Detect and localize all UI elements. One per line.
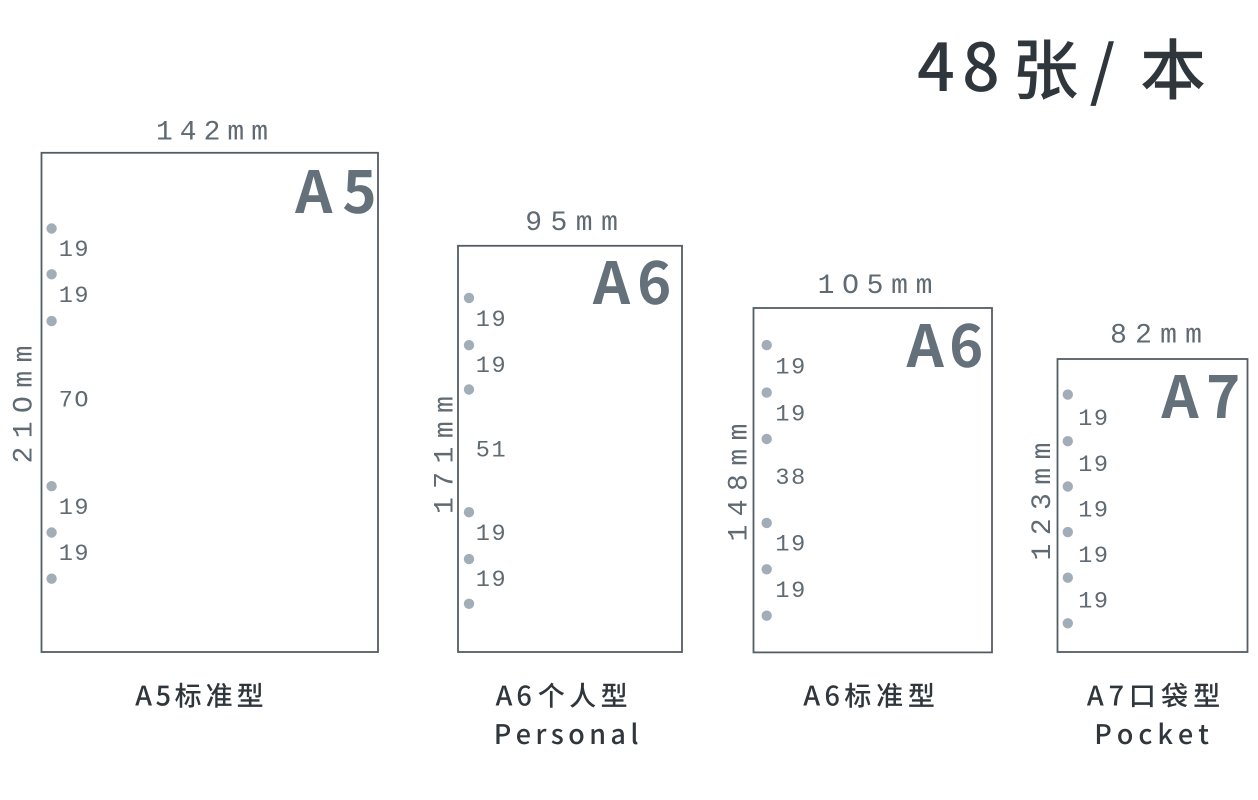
svg-text:19: 19 bbox=[59, 495, 90, 522]
svg-text:19: 19 bbox=[775, 354, 806, 381]
svg-text:82mm: 82mm bbox=[1110, 321, 1210, 352]
svg-text:19: 19 bbox=[1078, 497, 1109, 524]
svg-text:19: 19 bbox=[775, 578, 806, 605]
svg-text:19: 19 bbox=[1078, 406, 1109, 433]
svg-text:19: 19 bbox=[775, 532, 806, 559]
svg-text:21Omm: 21Omm bbox=[10, 337, 41, 464]
svg-text:19: 19 bbox=[775, 401, 806, 428]
svg-text:19: 19 bbox=[476, 353, 507, 380]
svg-text:19: 19 bbox=[476, 307, 507, 334]
svg-text:51: 51 bbox=[476, 438, 507, 465]
svg-text:95mm: 95mm bbox=[525, 208, 626, 239]
svg-text:38: 38 bbox=[775, 465, 806, 492]
svg-text:19: 19 bbox=[59, 237, 90, 264]
svg-text:19: 19 bbox=[476, 521, 507, 548]
svg-text:19: 19 bbox=[1078, 543, 1109, 570]
svg-text:19: 19 bbox=[59, 541, 90, 568]
svg-text:148mm: 148mm bbox=[725, 415, 756, 542]
svg-text:7O: 7O bbox=[59, 388, 90, 415]
svg-text:171mm: 171mm bbox=[431, 388, 462, 515]
svg-text:123mm: 123mm bbox=[1028, 434, 1059, 561]
svg-text:19: 19 bbox=[59, 283, 90, 310]
svg-text:19: 19 bbox=[1078, 589, 1109, 616]
svg-text:1O5mm: 1O5mm bbox=[818, 271, 941, 302]
svg-text:19: 19 bbox=[476, 567, 507, 594]
svg-text:19: 19 bbox=[1078, 452, 1109, 479]
svg-text:142mm: 142mm bbox=[156, 118, 275, 149]
